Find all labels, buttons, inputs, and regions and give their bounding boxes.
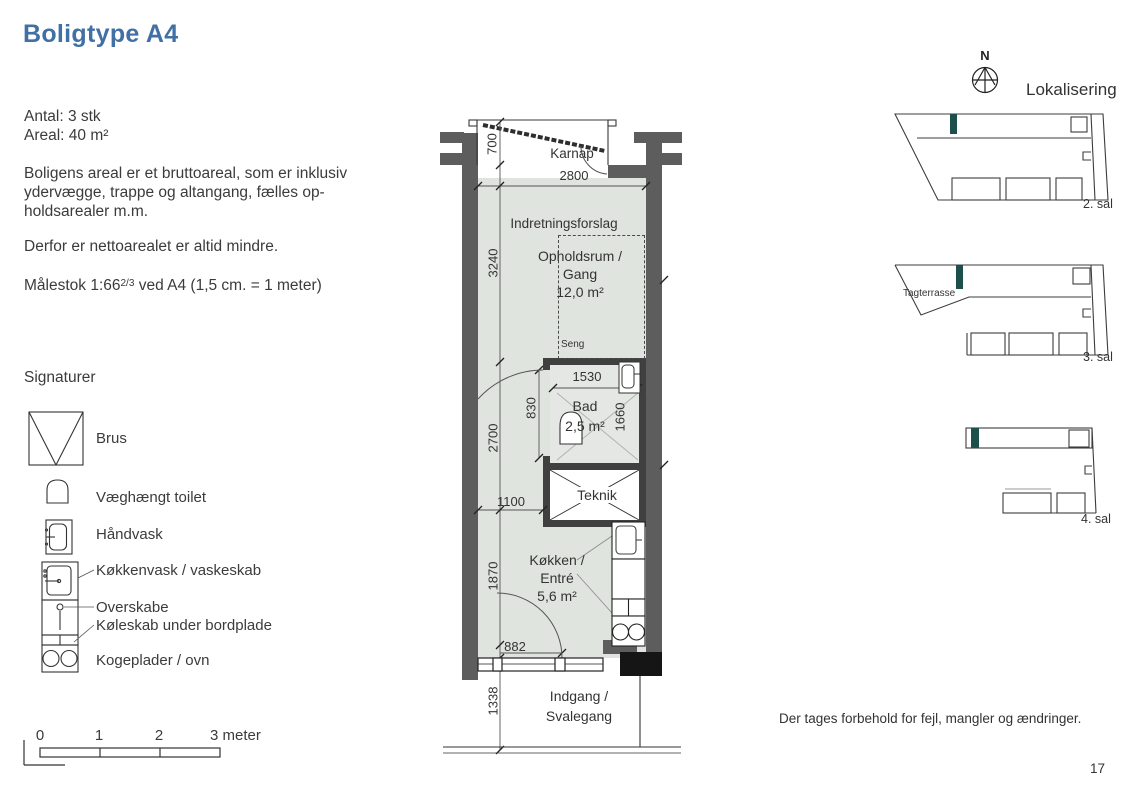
- legend-item-haandvask: Håndvask: [96, 526, 163, 543]
- area-description-line3: holdsarealer m.m.: [24, 202, 347, 221]
- legend-item-koekkenvask: Køkkenvask / vaskeskab: [96, 562, 261, 579]
- dim-1338: 1338: [486, 687, 501, 716]
- scale-label-2: 2: [155, 727, 163, 744]
- floor-plan: Karnap 700 2800 Indretningsforslag Ophol…: [435, 108, 685, 768]
- scale-bar: [20, 718, 280, 770]
- room-label-kokken-2: Entré: [540, 570, 573, 586]
- shower-symbol-icon: [29, 412, 83, 465]
- level-label-2-sal: 2. sal: [1083, 197, 1113, 211]
- kitchen-sink-unit: [612, 522, 645, 559]
- kitchen-leader-lines: [577, 536, 612, 613]
- area-description-line2: ydervægge, trappe og altangang, fælles o…: [24, 183, 347, 202]
- cooktop-oven-icon: [42, 635, 78, 672]
- legend-title: Signaturer: [24, 368, 96, 387]
- scale-label-1: 1: [95, 727, 103, 744]
- bathroom-basin-icon: [619, 362, 640, 393]
- under-counter-fridge-icon: [42, 600, 78, 635]
- room-label-karnap: Karnap: [550, 146, 594, 161]
- dim-3240: 3240: [486, 249, 501, 278]
- dim-1530: 1530: [573, 369, 602, 384]
- dim-2700: 2700: [486, 424, 501, 453]
- dim-1660: 1660: [613, 403, 628, 432]
- north-indicator: N: [964, 48, 1008, 100]
- hand-basin-icon: [46, 520, 73, 554]
- room-area-kokken: 5,6 m²: [537, 588, 577, 604]
- label-indgang-1: Indgang /: [550, 688, 608, 704]
- room-area-opholdsrum: 12,0 m²: [556, 284, 603, 300]
- level-label-3-sal: 3. sal: [1083, 350, 1113, 364]
- legend-item-overskabe: Overskabe: [96, 599, 169, 616]
- entrance-column: [620, 652, 662, 676]
- scale-note-prefix: Målestok 1:66: [24, 277, 121, 294]
- level-label-4-sal: 4. sal: [1081, 512, 1111, 526]
- level-plan-2-sal: [893, 100, 1115, 208]
- tagterrasse-label: Tagterrasse: [903, 288, 955, 299]
- net-area-note: Derfor er nettoarealet er altid mindre.: [24, 237, 278, 256]
- disclaimer-text: Der tages forbehold for fejl, mangler og…: [779, 711, 1081, 726]
- cooktop-unit: [612, 599, 645, 646]
- room-label-bad: Bad: [573, 398, 598, 414]
- area-description-line1: Boligens areal er et bruttoareal, som er…: [24, 164, 347, 183]
- room-label-opholdsrum-2: Gang: [563, 266, 597, 282]
- scale-label-3m: 3 meter: [210, 727, 261, 744]
- brochure-page: Boligtype A4 Antal: 3 stk Areal: 40 m² B…: [0, 0, 1146, 812]
- label-seng: Seng: [561, 339, 584, 350]
- scale-note: Målestok 1:662/3 ved A4 (1,5 cm. = 1 met…: [24, 274, 322, 295]
- unit-count: Antal: 3 stk: [24, 107, 101, 126]
- kitchen-sink-icon: [42, 562, 78, 600]
- entry-facade: [478, 658, 603, 671]
- scale-label-0: 0: [36, 727, 44, 744]
- legend-item-brus: Brus: [96, 430, 127, 447]
- legend-item-kogeplader: Kogeplader / ovn: [96, 652, 209, 669]
- room-label-opholdsrum-1: Opholdsrum /: [538, 248, 622, 264]
- level-plan-4-sal: [893, 406, 1115, 526]
- legend-leader-lines: [64, 570, 94, 642]
- scale-note-fraction: 2/3: [121, 278, 135, 289]
- kitchen-cabinet: [612, 559, 645, 599]
- compass-icon: [964, 54, 1008, 100]
- dim-830: 830: [524, 397, 539, 419]
- area-description: Boligens areal er et bruttoareal, som er…: [24, 164, 347, 221]
- lokalisering-title: Lokalisering: [1026, 80, 1117, 100]
- dim-700: 700: [485, 133, 500, 155]
- label-indretningsforslag: Indretningsforslag: [510, 216, 617, 231]
- dim-882: 882: [504, 639, 526, 654]
- unit-area: Areal: 40 m²: [24, 126, 108, 145]
- unit-marker-3-sal: [956, 265, 963, 289]
- room-label-teknik: Teknik: [574, 487, 620, 503]
- legend-item-koeleskab: Køleskab under bordplade: [96, 617, 272, 634]
- scale-note-suffix: ved A4 (1,5 cm. = 1 meter): [134, 277, 321, 294]
- level-plan-3-sal: [893, 253, 1115, 365]
- room-area-bad: 2,5 m²: [565, 418, 605, 434]
- room-label-kokken-1: Køkken /: [529, 552, 584, 568]
- dim-1870: 1870: [486, 562, 501, 591]
- bathroom-door-swing: [478, 370, 543, 399]
- dim-1100: 1100: [497, 494, 525, 509]
- page-number: 17: [1090, 761, 1105, 776]
- page-title: Boligtype A4: [23, 20, 178, 49]
- legend-symbols: [24, 400, 102, 700]
- unit-marker-4-sal: [971, 428, 979, 448]
- wall-hung-toilet-icon: [47, 480, 68, 503]
- legend-item-toilet: Væghængt toilet: [96, 489, 206, 506]
- dim-2800: 2800: [560, 168, 589, 183]
- unit-marker-2-sal: [950, 114, 957, 134]
- label-indgang-2: Svalegang: [546, 708, 612, 724]
